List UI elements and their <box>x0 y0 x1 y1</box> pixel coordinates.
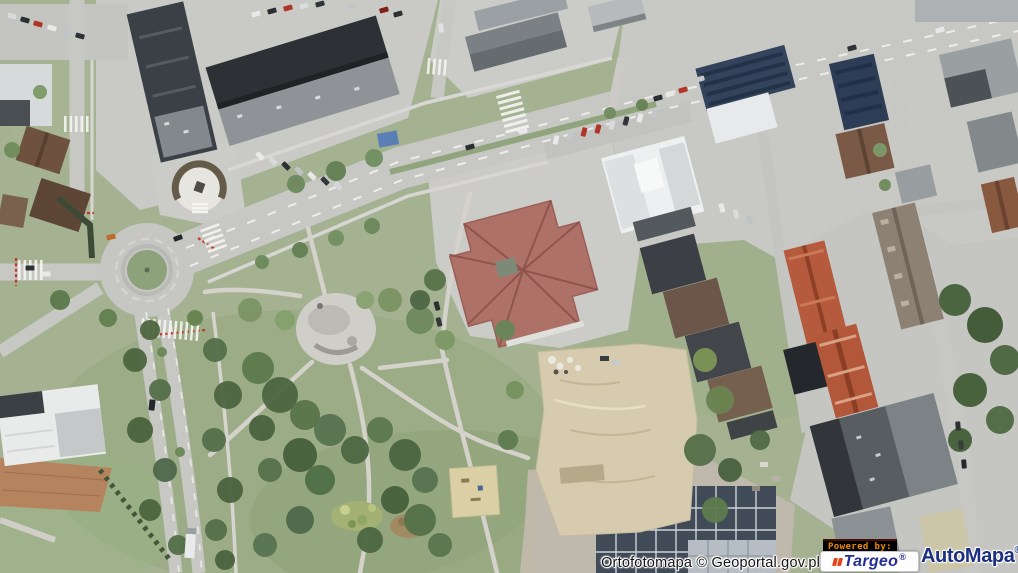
automapa-registered-mark: ® <box>1014 545 1018 556</box>
truck <box>184 528 196 559</box>
targeo-logo-text: Targeo <box>844 553 899 571</box>
aerial-imagery <box>0 0 1018 573</box>
automapa-logo-text: AutoMapa <box>921 545 1014 567</box>
playground <box>449 465 499 517</box>
targeo-quote-icon <box>832 558 842 566</box>
map-viewport[interactable]: Ortofotomapa © Geoportal.gov.pl Powered … <box>0 0 1018 573</box>
school-building <box>0 384 106 466</box>
map-attribution: Ortofotomapa © Geoportal.gov.pl <box>601 555 820 571</box>
automapa-logo[interactable]: AutoMapa® <box>921 545 1018 568</box>
targeo-logo[interactable]: Targeo ® <box>820 551 919 572</box>
targeo-registered-mark: ® <box>899 552 906 562</box>
construction-site <box>536 344 697 536</box>
